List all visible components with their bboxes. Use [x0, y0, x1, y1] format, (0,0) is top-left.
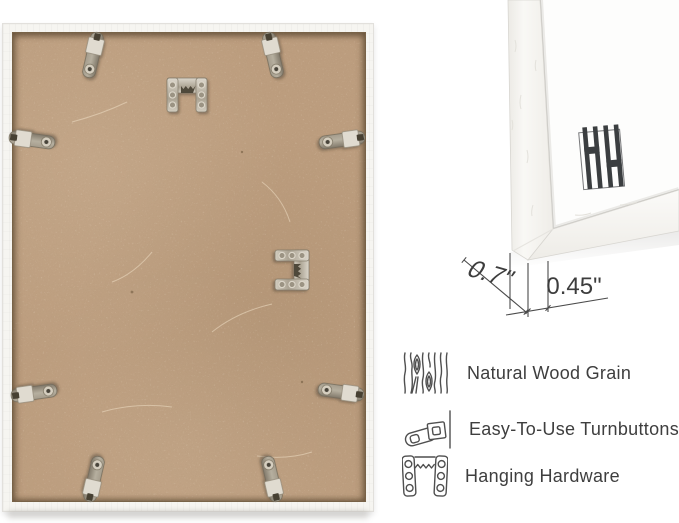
- turnbutton-bottom-right: [259, 455, 285, 503]
- turnbutton-icon: [402, 408, 452, 450]
- turnbutton-left-lower: [10, 382, 58, 404]
- frame-drop-shadow: [8, 511, 368, 522]
- frame-outer: [2, 23, 374, 512]
- hanging-hardware-icon: [402, 455, 448, 498]
- face-dimension-label: 0.45": [546, 273, 601, 300]
- turnbutton-top-left: [80, 31, 106, 79]
- feature-row-turnbuttons: Easy-To-Use Turnbuttons: [402, 408, 679, 450]
- feature-row-hanging-hardware: Hanging Hardware: [402, 455, 620, 498]
- turnbutton-left-upper: [8, 129, 56, 151]
- sawtooth-hanger-middle: [275, 250, 309, 290]
- turnbutton-top-right: [260, 31, 286, 79]
- sawtooth-hanger-top: [167, 78, 207, 112]
- product-image: 0.7" 0.45": [0, 0, 679, 523]
- turnbutton-right-upper: [318, 129, 366, 151]
- turnbutton-bottom-left: [81, 455, 107, 503]
- feature-row-wood-grain: Natural Wood Grain: [402, 351, 631, 395]
- feature-label: Easy-To-Use Turnbuttons: [469, 419, 679, 440]
- feature-label: Natural Wood Grain: [467, 363, 631, 384]
- hardware-layer: [12, 32, 366, 502]
- feature-label: Hanging Hardware: [465, 466, 620, 487]
- wood-grain-icon: [402, 351, 450, 395]
- turnbutton-right-lower: [317, 381, 365, 403]
